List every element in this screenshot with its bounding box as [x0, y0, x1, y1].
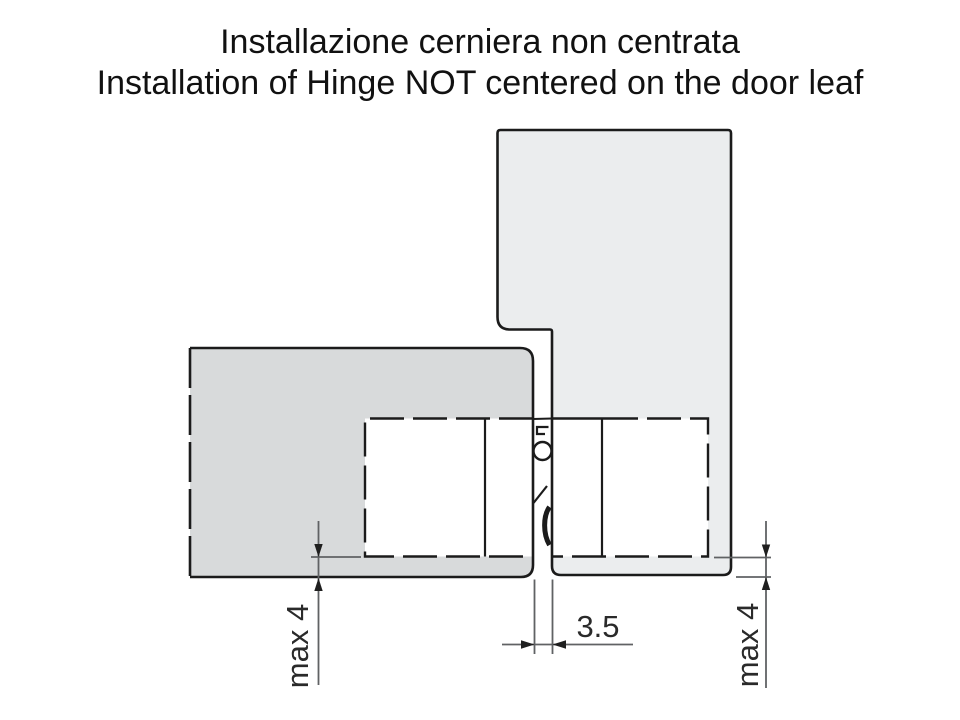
- dim-left-label: max 4: [280, 604, 315, 688]
- dim-right-label: max 4: [730, 603, 765, 687]
- hinge-arm-edge: [534, 486, 548, 503]
- dim-gap-label: 3.5: [576, 609, 619, 644]
- hinge-arm-curve: [545, 507, 550, 545]
- dimension-reveal-gap: 3.5: [502, 580, 633, 655]
- dim-gap-arrow-left: [553, 640, 567, 648]
- door-hinge-recess: [365, 419, 533, 557]
- door-hinge-recess-body: [365, 419, 533, 557]
- frame-hinge-recess-body: [552, 419, 708, 557]
- hinge-diagram: max 4 3.5 max 4: [0, 0, 960, 720]
- hinge-knuckle: [533, 419, 552, 546]
- hinge-knuckle-cap: [537, 427, 549, 434]
- dim-left-arrow-up: [314, 578, 322, 591]
- dim-gap-arrow-right: [521, 640, 535, 648]
- hinge-knuckle-top-line: [533, 419, 552, 420]
- dim-right-arrow-up: [762, 577, 770, 590]
- dim-right-arrow-down: [762, 545, 770, 558]
- hinge-pivot-pin: [534, 442, 552, 460]
- frame-hinge-recess: [552, 419, 708, 557]
- figure-page: Installazione cerniera non centrata Inst…: [0, 0, 960, 720]
